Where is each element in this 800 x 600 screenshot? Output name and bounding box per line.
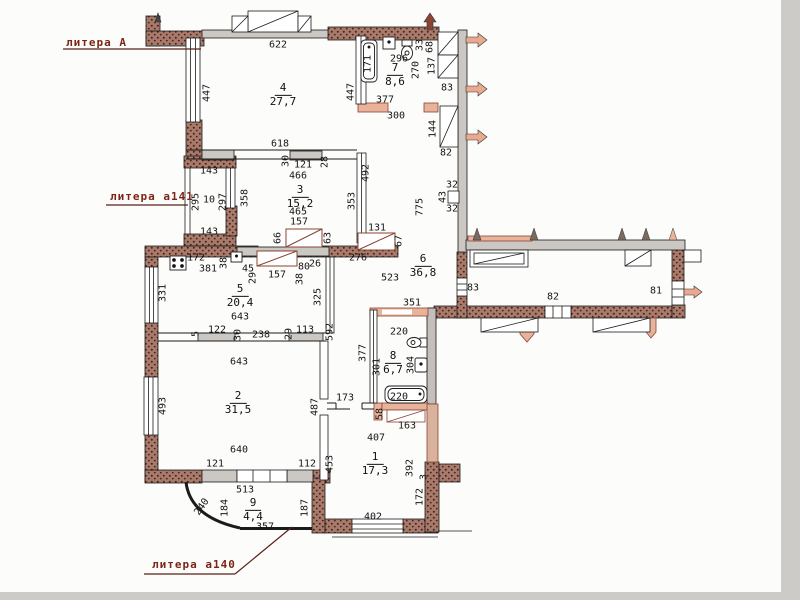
toilet-icon xyxy=(407,338,427,348)
brick-walls-layer xyxy=(145,16,685,533)
fixtures-layer xyxy=(170,37,427,403)
kitchen-sink-icon xyxy=(231,252,242,262)
bathtub-icon xyxy=(361,40,377,82)
stove-icon xyxy=(170,256,186,270)
pink-walls-layer xyxy=(358,103,656,462)
bathtub-icon xyxy=(385,386,427,403)
toilet-icon xyxy=(402,40,413,60)
floor-plan-drawing xyxy=(0,0,800,600)
sink-icon xyxy=(415,358,427,372)
floor-plan-canvas: литера А литера а141 литера а140 6224474… xyxy=(0,0,800,600)
leader-lines xyxy=(63,49,292,574)
windows-layer xyxy=(144,11,701,533)
sink-icon xyxy=(383,37,395,49)
